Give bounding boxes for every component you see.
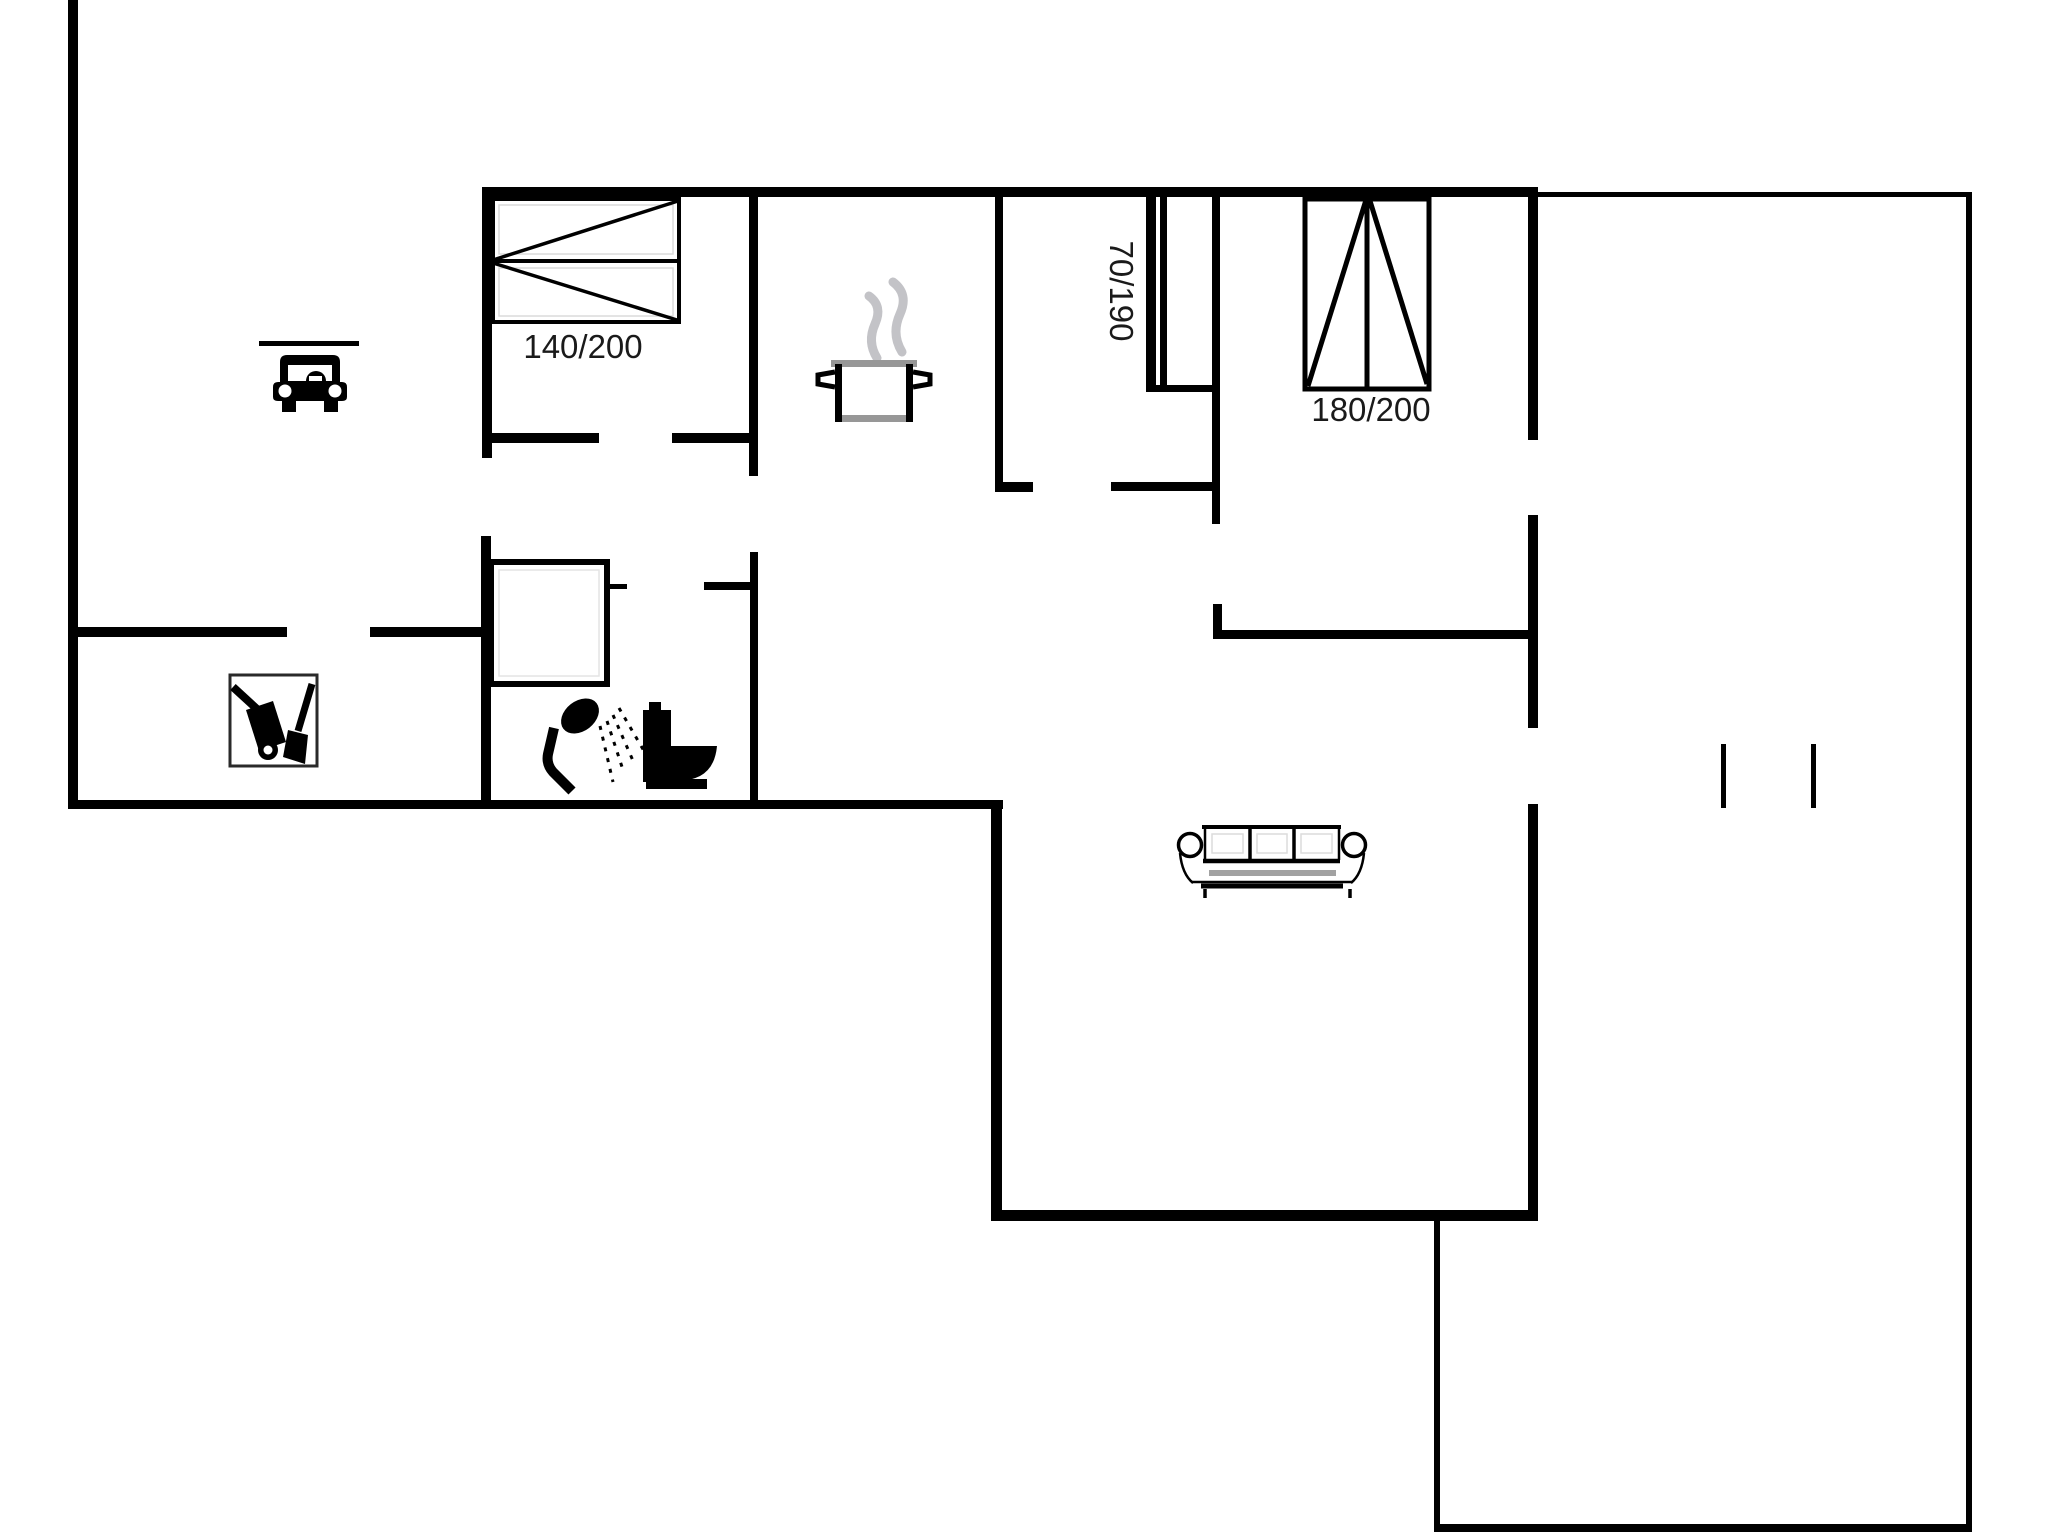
svg-text:140/200: 140/200 (523, 328, 642, 365)
svg-text:180/200: 180/200 (1311, 391, 1430, 428)
svg-text:70/190: 70/190 (1103, 241, 1140, 342)
